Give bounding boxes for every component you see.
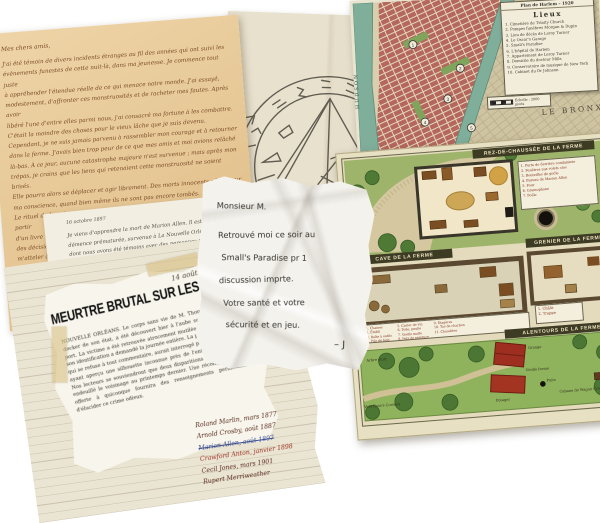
note-signature: – J bbox=[334, 339, 345, 350]
ground-floor-legend: 1. Porte de derrière condamnée 2. Fenêtr… bbox=[517, 155, 599, 210]
note-line: Retrouvé moi ce soir au bbox=[218, 229, 315, 240]
farm-map[interactable]: REZ-DE-CHAUSSÉE DE LA FERME 1. Porte de … bbox=[335, 131, 600, 440]
cultist-name-list: Roland Marlin, mars 1877 Arnold Crosby, … bbox=[195, 407, 297, 488]
legend-column: 9. Étagères 10. Tas de charbon 11. Chaud… bbox=[434, 319, 466, 336]
tape-strip bbox=[52, 326, 68, 382]
harlem-map-legend: Plan de Harlem – 1920 Lieux 1. Cimetière… bbox=[500, 0, 599, 96]
label-well: Puits bbox=[546, 378, 555, 383]
note-line: Monsieur M. bbox=[217, 200, 267, 211]
crumpled-note[interactable]: Monsieur M. Retrouvé moi ce soir au Smal… bbox=[195, 176, 376, 373]
note-line: discussion imprte. bbox=[219, 273, 294, 285]
note-line: sécurité et en jeu. bbox=[226, 319, 300, 330]
note-line: Votre santé et votre bbox=[223, 297, 305, 308]
attic-legend: 1. Châlit 2. Trappe bbox=[535, 302, 584, 325]
shack-building bbox=[594, 372, 600, 380]
legend-column: 5. Casier de vin 6. Toile, poulie 7. Vie… bbox=[397, 322, 429, 339]
farm-well bbox=[537, 210, 554, 227]
barn-building bbox=[494, 342, 526, 367]
farmhouse-building bbox=[491, 375, 526, 393]
scale-bar-icon bbox=[490, 100, 513, 106]
letter-date: 16 octobre 1897 bbox=[66, 217, 106, 226]
letter-salutation: Mes chers amis, bbox=[1, 42, 51, 53]
scale-label: Échelle : 2000 pieds bbox=[515, 96, 548, 106]
legend-column: 1. Chaises 2. Établi 3. Boîte à outils 4… bbox=[366, 325, 392, 342]
note-line: Small's Paradise pr 1 bbox=[221, 252, 307, 263]
scene-desk-props: { "colors": { "background": "#ffffff", "… bbox=[0, 0, 600, 502]
attic-plan bbox=[529, 247, 600, 303]
